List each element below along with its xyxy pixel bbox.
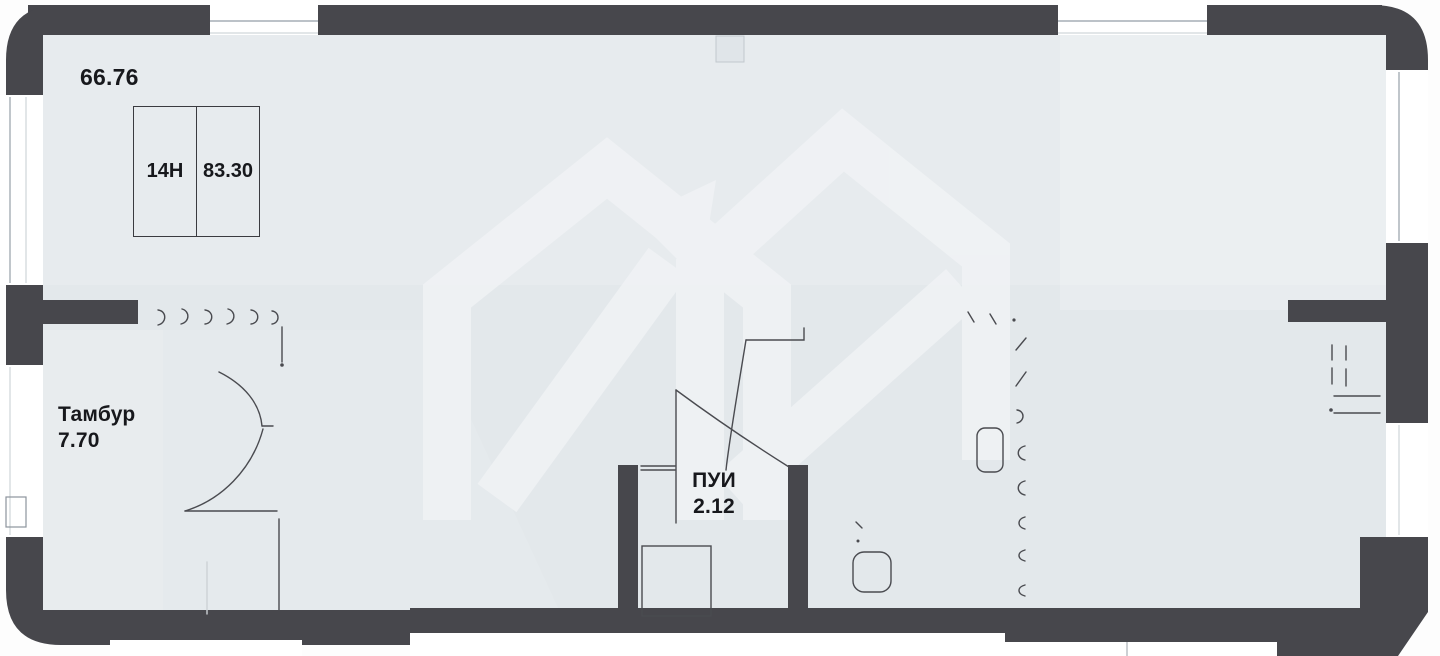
room-label-tambur: Тамбур 7.70 — [58, 402, 135, 454]
window-top-right — [1058, 0, 1207, 35]
vent-shaft — [716, 36, 744, 62]
window-right-upper — [1386, 70, 1428, 243]
window-bottom-left — [110, 640, 302, 656]
window-bottom-center — [410, 633, 1005, 656]
unit-area-label: 83.30 — [197, 107, 259, 236]
window-left-lower — [0, 365, 43, 537]
window-right-lower — [1386, 423, 1428, 537]
window-bottom-right — [1005, 642, 1277, 656]
window-top-left — [210, 0, 318, 35]
unit-box: 14Н 83.30 — [133, 106, 260, 237]
room-label-pui: ПУИ 2.12 — [683, 468, 745, 520]
floor-plan-drawing — [0, 0, 1440, 656]
unit-number-label: 14Н — [134, 107, 197, 236]
total-area-label: 66.76 — [80, 64, 139, 90]
window-left-upper — [0, 95, 43, 285]
floor-plan: 66.76 14Н 83.30 Тамбур 7.70 ПУИ 2.12 — [0, 0, 1440, 656]
